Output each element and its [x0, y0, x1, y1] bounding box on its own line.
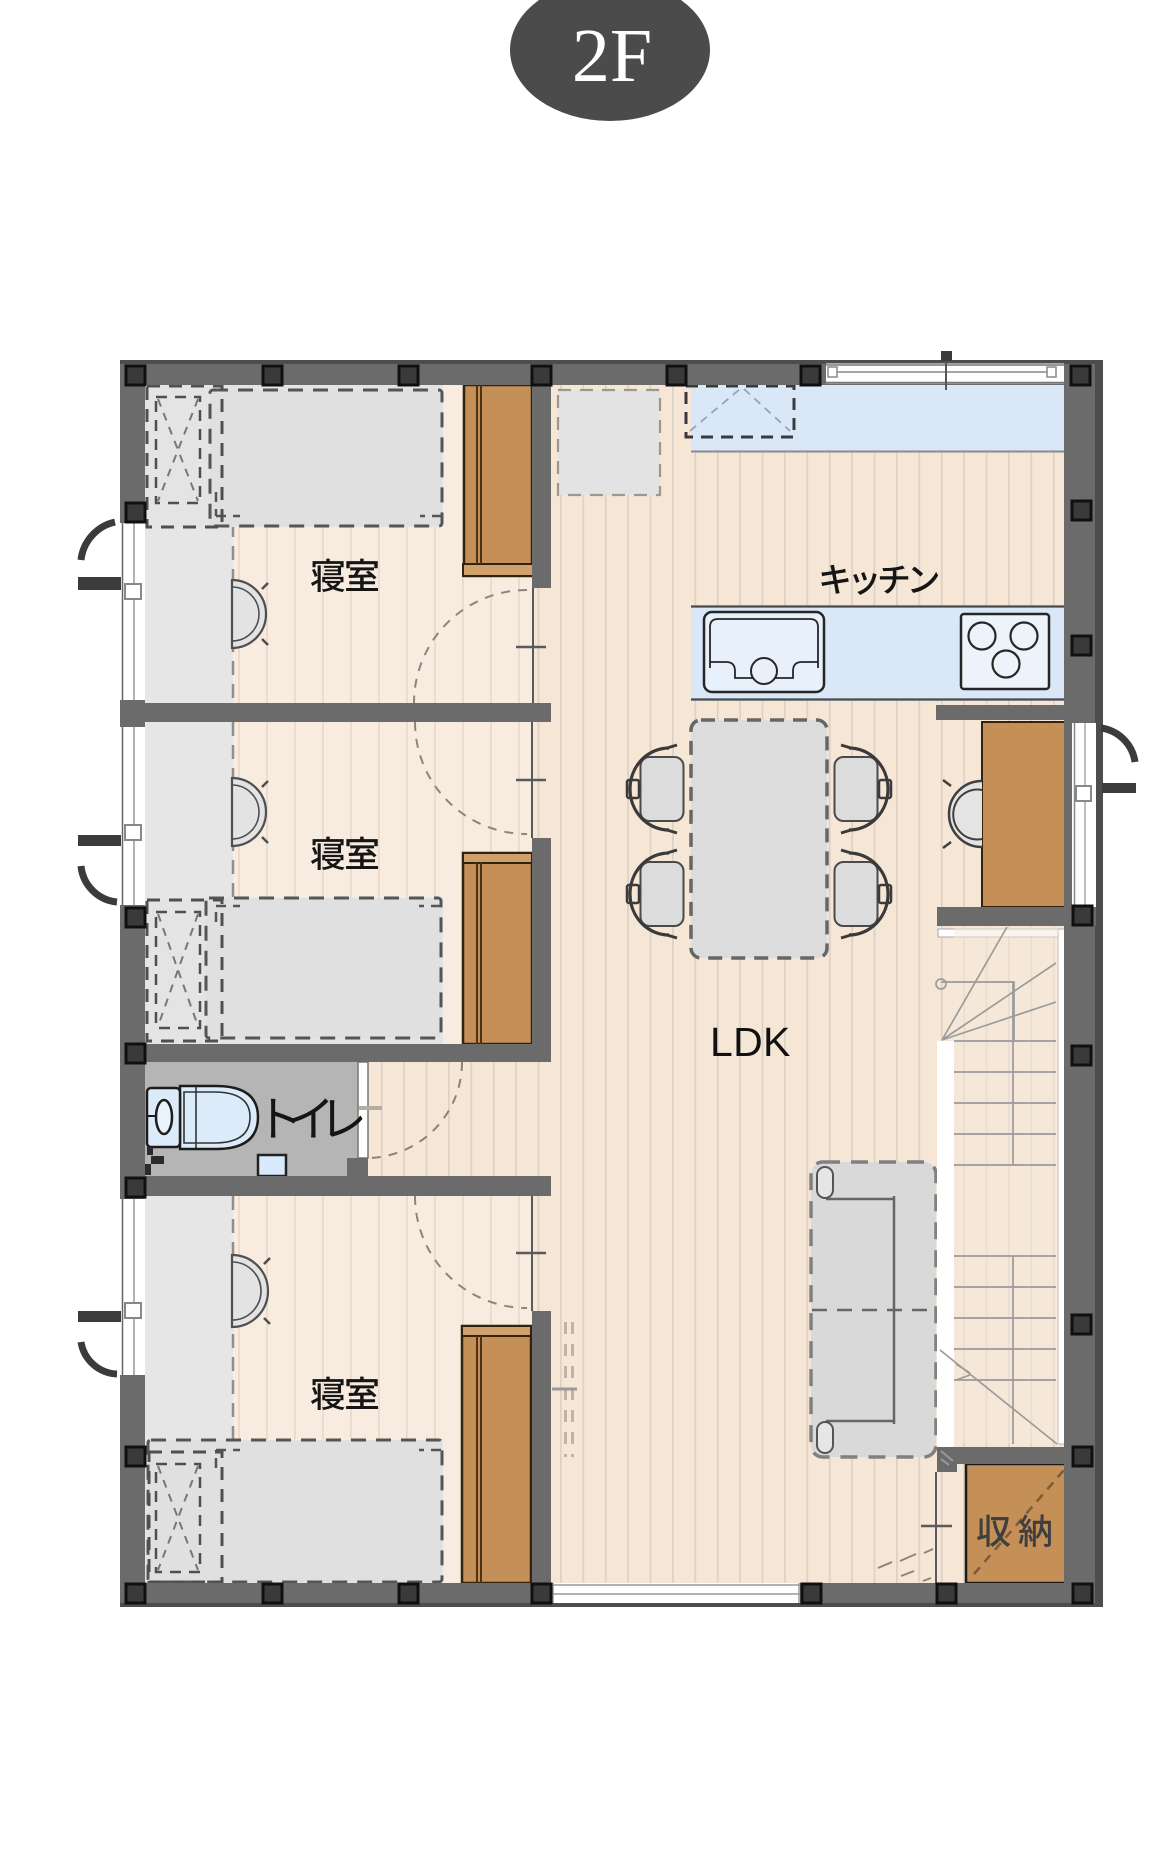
svg-text:2F: 2F [572, 14, 652, 98]
svg-text:LDK: LDK [710, 1019, 791, 1065]
